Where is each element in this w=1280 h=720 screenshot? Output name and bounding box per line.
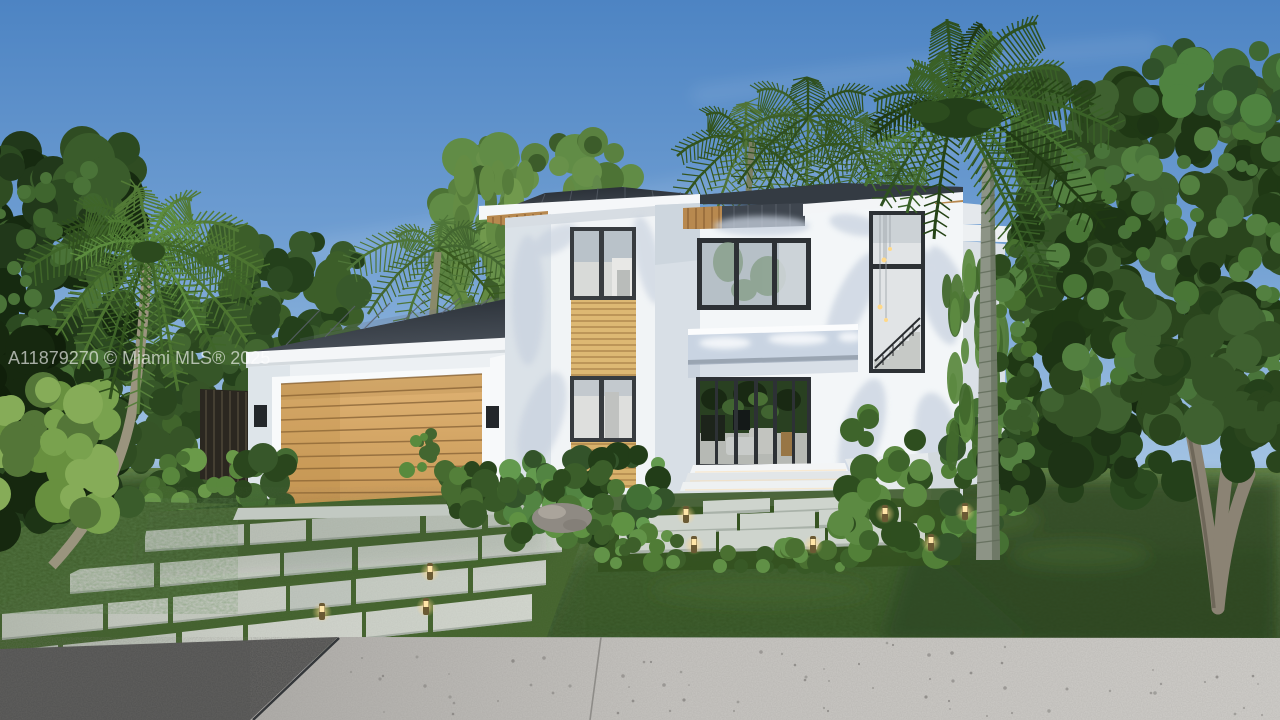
svg-text:A11879270 © Miami MLS® 2025: A11879270 © Miami MLS® 2025 — [8, 348, 270, 368]
